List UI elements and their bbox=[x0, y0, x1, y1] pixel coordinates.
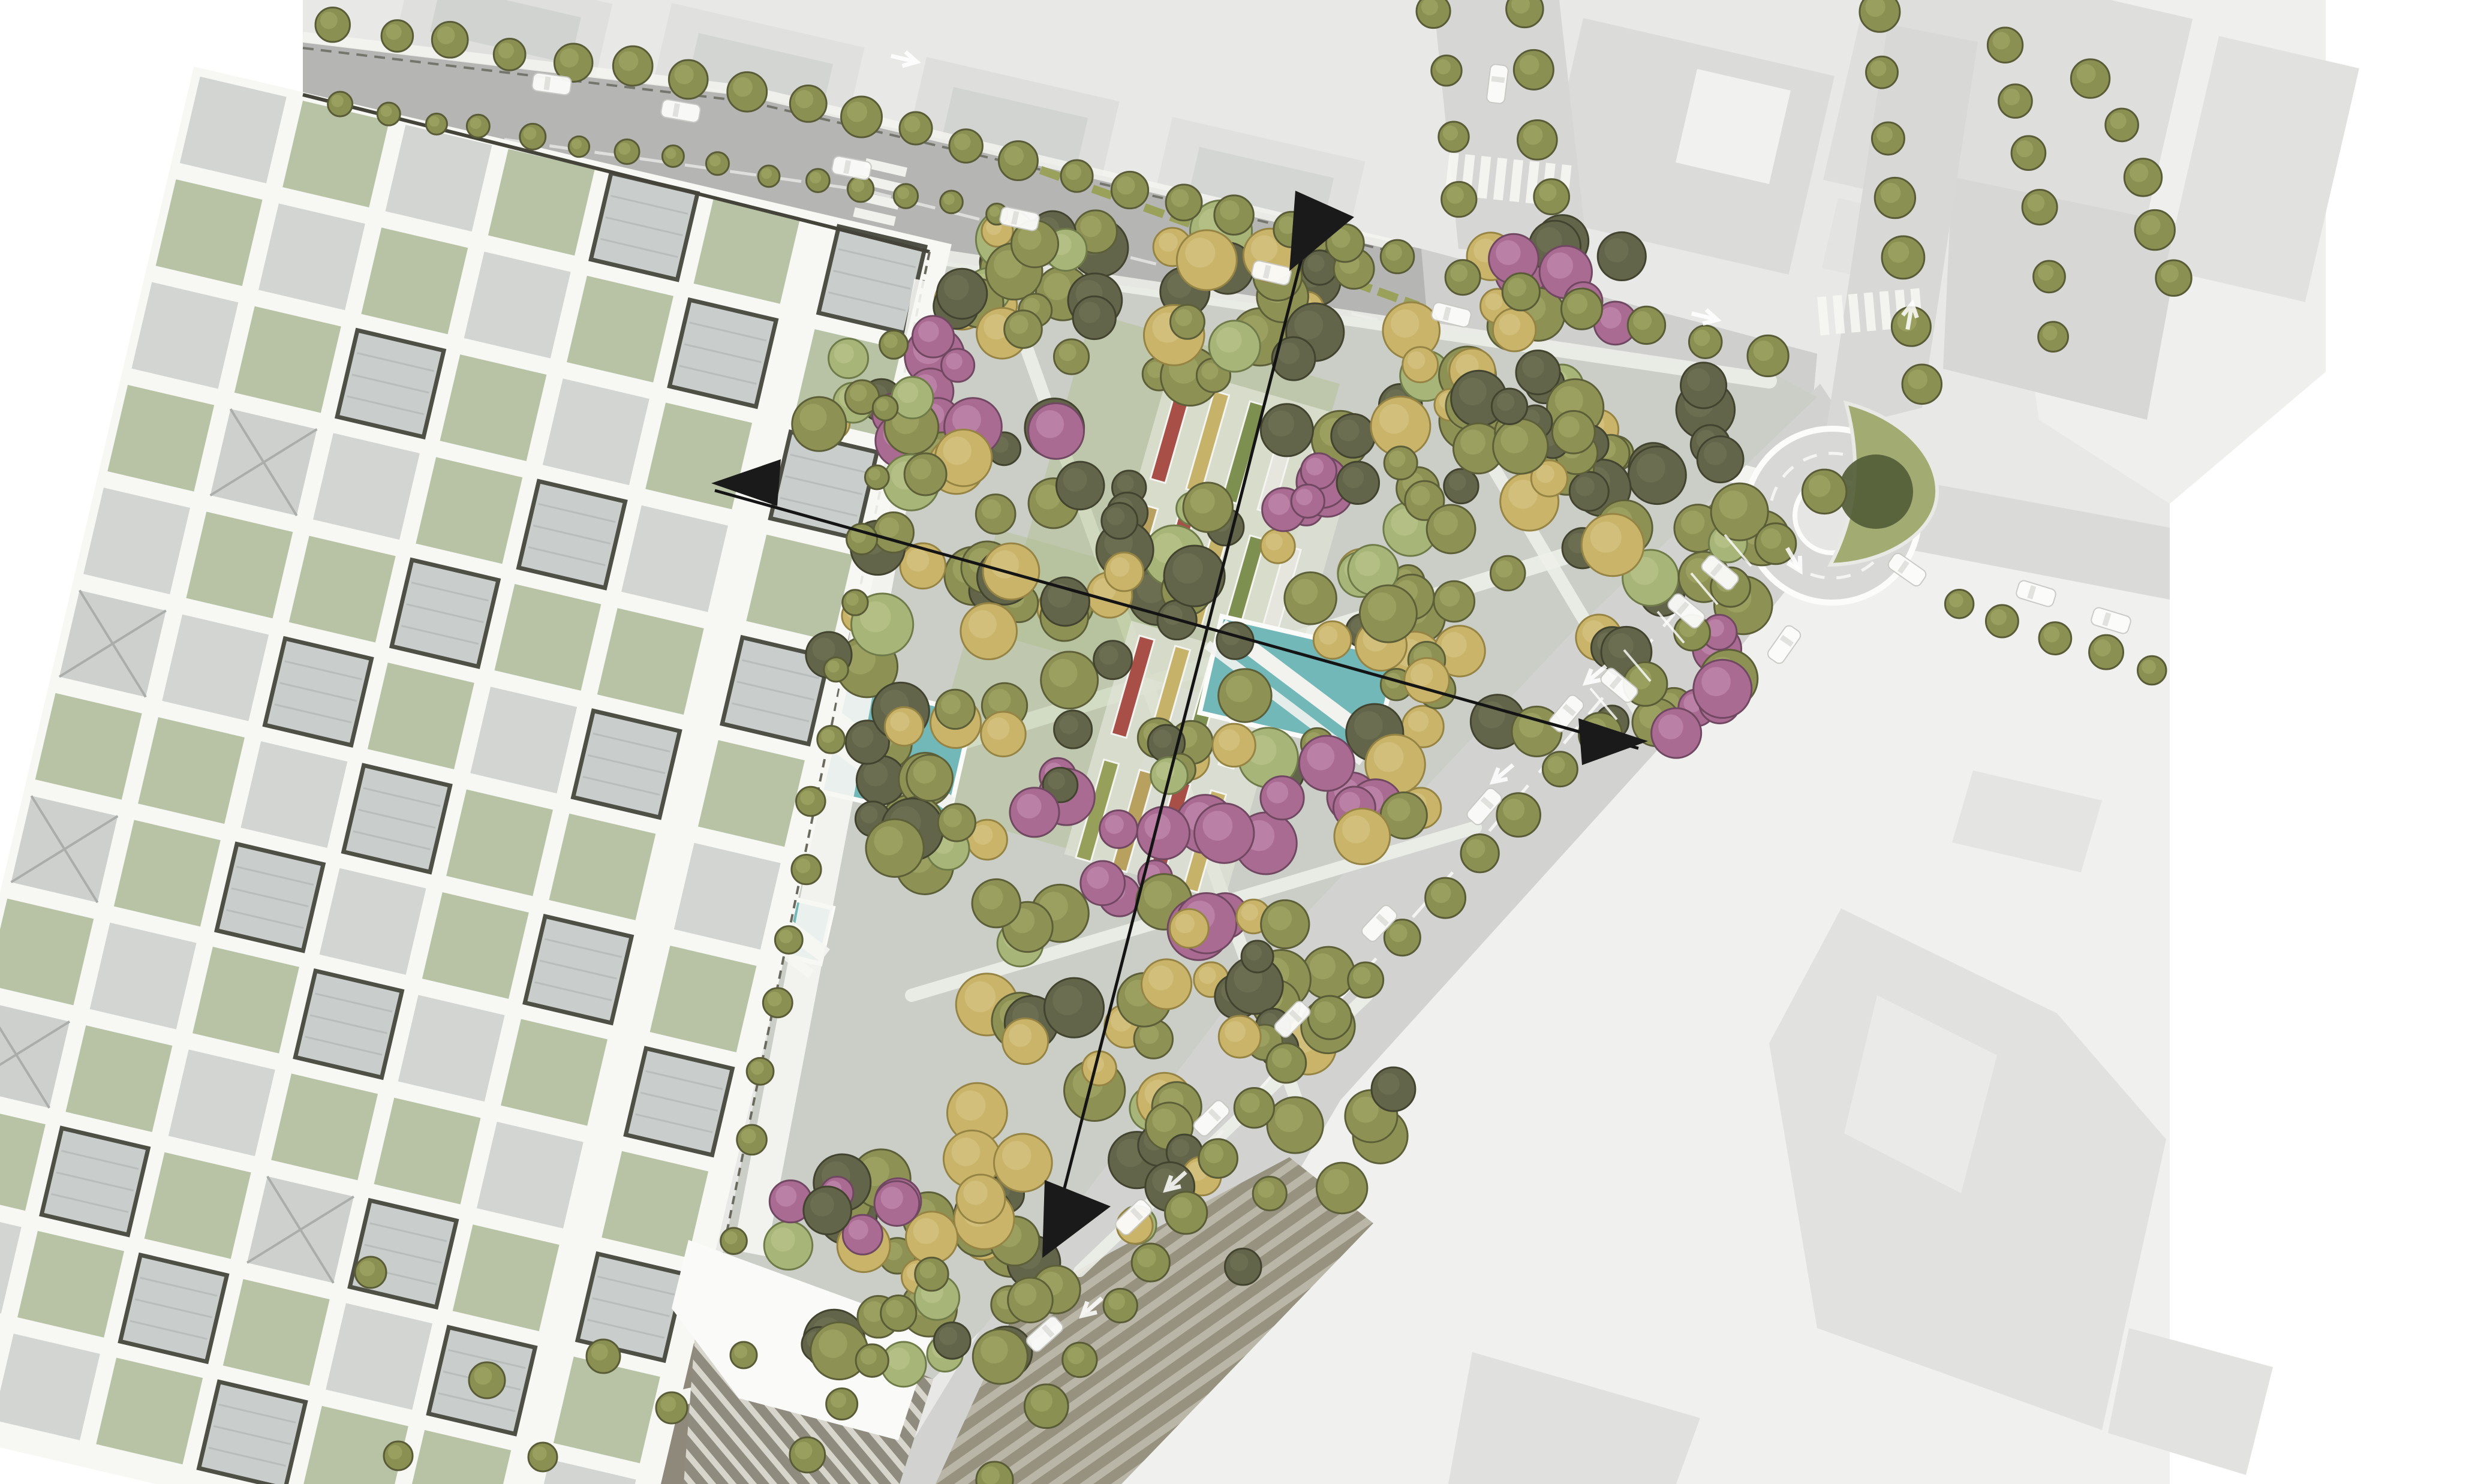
tree bbox=[2039, 622, 2071, 655]
tree bbox=[469, 1362, 505, 1398]
tree bbox=[615, 139, 639, 164]
tree bbox=[1681, 363, 1727, 408]
tree bbox=[1516, 351, 1560, 395]
tree bbox=[727, 72, 767, 112]
tree bbox=[1195, 803, 1254, 863]
tree bbox=[1561, 288, 1602, 329]
tree bbox=[528, 1443, 557, 1471]
tree bbox=[1267, 1097, 1323, 1153]
tree bbox=[1002, 1018, 1048, 1064]
tree bbox=[355, 1257, 386, 1288]
tree bbox=[1534, 179, 1569, 215]
tree bbox=[1628, 447, 1686, 504]
tree bbox=[1372, 1067, 1415, 1111]
site-plan-page bbox=[0, 0, 2478, 1484]
tree bbox=[1267, 1043, 1306, 1083]
tree bbox=[1552, 411, 1595, 453]
tree bbox=[843, 590, 868, 615]
tree bbox=[1875, 177, 1915, 218]
tree bbox=[847, 176, 873, 202]
tree bbox=[1439, 122, 1469, 152]
tree bbox=[1999, 85, 2032, 118]
tree bbox=[1986, 605, 2018, 637]
tree bbox=[1697, 437, 1743, 483]
tree bbox=[2034, 261, 2065, 293]
tree bbox=[1569, 472, 1608, 511]
tree bbox=[1542, 752, 1577, 787]
tree bbox=[1103, 1289, 1137, 1322]
tree bbox=[1029, 404, 1084, 459]
tree bbox=[865, 465, 889, 489]
tree bbox=[915, 1257, 948, 1290]
tree bbox=[764, 1221, 813, 1270]
tree bbox=[942, 349, 975, 382]
tree bbox=[949, 130, 983, 163]
tree bbox=[1214, 195, 1253, 234]
tree bbox=[1493, 419, 1548, 474]
tree bbox=[1405, 658, 1449, 703]
tree bbox=[721, 1228, 747, 1254]
tree bbox=[1748, 335, 1788, 376]
tree bbox=[983, 543, 1039, 600]
tree bbox=[938, 804, 975, 841]
tree bbox=[934, 1322, 970, 1359]
tree bbox=[656, 1392, 687, 1423]
tree bbox=[1427, 505, 1475, 553]
tree bbox=[874, 1181, 919, 1226]
tree bbox=[758, 165, 780, 187]
tree bbox=[1132, 1244, 1169, 1281]
tree bbox=[1073, 296, 1115, 339]
tree bbox=[1213, 724, 1255, 766]
tree bbox=[1502, 273, 1539, 311]
tree bbox=[1497, 793, 1541, 837]
tree bbox=[1005, 311, 1042, 348]
tree bbox=[737, 1125, 767, 1155]
tree bbox=[1044, 978, 1103, 1037]
tree bbox=[790, 85, 826, 122]
tree bbox=[1199, 1139, 1238, 1178]
tree bbox=[1061, 160, 1093, 192]
tree bbox=[1100, 810, 1138, 848]
tree bbox=[467, 115, 489, 137]
tree bbox=[1902, 365, 1942, 404]
tree bbox=[1461, 834, 1499, 872]
tree bbox=[937, 269, 987, 318]
tree bbox=[1872, 122, 1904, 155]
tree bbox=[1261, 529, 1295, 563]
tree bbox=[940, 191, 963, 213]
tree bbox=[1219, 669, 1272, 723]
tree bbox=[1445, 260, 1480, 295]
tree bbox=[792, 855, 821, 884]
tree bbox=[1285, 573, 1337, 625]
tree bbox=[1384, 447, 1417, 480]
tree bbox=[1313, 621, 1351, 659]
tree bbox=[1183, 483, 1232, 532]
tree bbox=[613, 46, 652, 86]
tree bbox=[1170, 305, 1204, 339]
tree bbox=[1493, 308, 1535, 351]
tree bbox=[775, 926, 802, 954]
tree bbox=[1261, 404, 1313, 456]
tree bbox=[894, 184, 918, 208]
tree bbox=[669, 60, 708, 99]
tree bbox=[587, 1339, 620, 1373]
tree bbox=[1334, 808, 1390, 864]
tree bbox=[806, 169, 829, 192]
tree bbox=[1054, 711, 1092, 748]
tree bbox=[1177, 230, 1237, 290]
tree bbox=[426, 113, 447, 134]
tree bbox=[1381, 240, 1414, 273]
tree bbox=[377, 103, 400, 125]
tree bbox=[972, 879, 1020, 927]
tree bbox=[2071, 59, 2109, 98]
tree bbox=[1010, 788, 1059, 837]
car bbox=[1486, 64, 1509, 104]
tree bbox=[1253, 1177, 1286, 1211]
tree bbox=[2138, 656, 2167, 685]
tree bbox=[1316, 1163, 1367, 1214]
tree bbox=[2124, 159, 2161, 196]
tree bbox=[1882, 236, 1924, 279]
tree bbox=[1261, 776, 1304, 820]
tree bbox=[994, 1134, 1052, 1192]
tree bbox=[1860, 0, 1900, 32]
tree bbox=[981, 712, 1026, 757]
tree bbox=[2089, 635, 2124, 669]
tree bbox=[1261, 900, 1309, 948]
tree bbox=[1225, 1248, 1261, 1285]
tree bbox=[747, 1058, 774, 1085]
tree bbox=[1170, 909, 1209, 948]
tree bbox=[1308, 996, 1351, 1039]
tree bbox=[763, 988, 792, 1018]
tree bbox=[866, 819, 924, 877]
tree bbox=[829, 339, 868, 378]
tree bbox=[1444, 469, 1478, 503]
tree bbox=[1517, 121, 1557, 160]
tree bbox=[1241, 941, 1273, 973]
tree bbox=[1299, 736, 1354, 791]
tree bbox=[1105, 552, 1143, 591]
tree bbox=[384, 1441, 413, 1470]
tree bbox=[973, 1329, 1027, 1384]
tree bbox=[2011, 136, 2046, 170]
tree bbox=[1581, 514, 1644, 576]
tree bbox=[315, 7, 350, 41]
tree bbox=[1514, 50, 1553, 89]
tree bbox=[907, 755, 953, 801]
tree bbox=[1694, 660, 1752, 718]
tree bbox=[824, 657, 848, 681]
tree bbox=[1234, 1088, 1274, 1128]
tree bbox=[826, 1389, 858, 1420]
tree bbox=[1024, 1384, 1068, 1428]
tree bbox=[1063, 1342, 1097, 1377]
tree bbox=[1219, 1016, 1261, 1058]
tree bbox=[1945, 589, 1973, 618]
tree bbox=[2156, 260, 2191, 296]
tree bbox=[569, 136, 589, 156]
tree bbox=[957, 1175, 1005, 1223]
tree bbox=[1490, 556, 1525, 591]
tree bbox=[976, 495, 1015, 534]
tree bbox=[1506, 0, 1544, 28]
tree bbox=[662, 145, 684, 167]
tree bbox=[520, 124, 546, 149]
tree bbox=[1628, 306, 1665, 344]
tree bbox=[856, 1344, 888, 1377]
tree bbox=[880, 330, 908, 359]
tree bbox=[1331, 414, 1375, 457]
master-plan-svg bbox=[0, 0, 2478, 1484]
tree bbox=[2022, 190, 2057, 225]
tree bbox=[1866, 56, 1898, 88]
tree bbox=[1426, 878, 1466, 918]
tree bbox=[1301, 453, 1336, 489]
tree bbox=[1041, 652, 1098, 709]
tree bbox=[1652, 708, 1701, 758]
tree bbox=[999, 141, 1037, 180]
tree bbox=[1111, 171, 1148, 208]
tree bbox=[961, 603, 1017, 660]
tree bbox=[1056, 462, 1104, 510]
tree bbox=[2038, 322, 2068, 352]
tree bbox=[1442, 182, 1476, 216]
island-dark-planting bbox=[1839, 454, 1913, 529]
tree bbox=[1689, 326, 1722, 359]
tree bbox=[1755, 523, 1796, 564]
tree bbox=[1598, 232, 1646, 280]
tree bbox=[1360, 585, 1417, 642]
tree bbox=[1432, 56, 1461, 86]
tree bbox=[1802, 469, 1846, 513]
tree bbox=[904, 453, 946, 495]
tree bbox=[730, 1342, 757, 1368]
tree bbox=[1137, 807, 1189, 859]
tree bbox=[1209, 321, 1260, 372]
tree bbox=[1417, 0, 1450, 28]
tree bbox=[1403, 347, 1438, 383]
tree bbox=[1491, 389, 1527, 424]
tree bbox=[873, 512, 913, 552]
tree bbox=[1094, 641, 1132, 679]
tree bbox=[2135, 210, 2175, 249]
tree bbox=[873, 395, 898, 420]
tree bbox=[796, 787, 825, 816]
tree bbox=[1166, 185, 1202, 221]
tree bbox=[1081, 861, 1125, 905]
tree bbox=[792, 397, 846, 451]
tree bbox=[1337, 462, 1379, 504]
tree bbox=[328, 92, 353, 116]
tree bbox=[1987, 28, 2022, 62]
tree bbox=[881, 1296, 916, 1331]
tree bbox=[804, 1187, 852, 1235]
tree bbox=[817, 726, 845, 753]
tree bbox=[936, 690, 975, 729]
tree bbox=[790, 1437, 825, 1473]
tree bbox=[1291, 484, 1324, 517]
tree bbox=[2106, 109, 2139, 142]
tree bbox=[706, 152, 729, 175]
tree bbox=[494, 39, 525, 71]
tree bbox=[1434, 581, 1475, 622]
tree bbox=[1348, 962, 1384, 998]
tree bbox=[841, 97, 882, 137]
tree bbox=[1054, 339, 1088, 374]
tree bbox=[885, 707, 923, 745]
tree bbox=[1165, 1192, 1207, 1234]
tree bbox=[1102, 503, 1138, 539]
tree bbox=[1008, 1278, 1053, 1323]
tree bbox=[432, 22, 468, 58]
tree bbox=[1141, 959, 1191, 1009]
tree bbox=[900, 112, 932, 145]
tree bbox=[381, 20, 413, 52]
